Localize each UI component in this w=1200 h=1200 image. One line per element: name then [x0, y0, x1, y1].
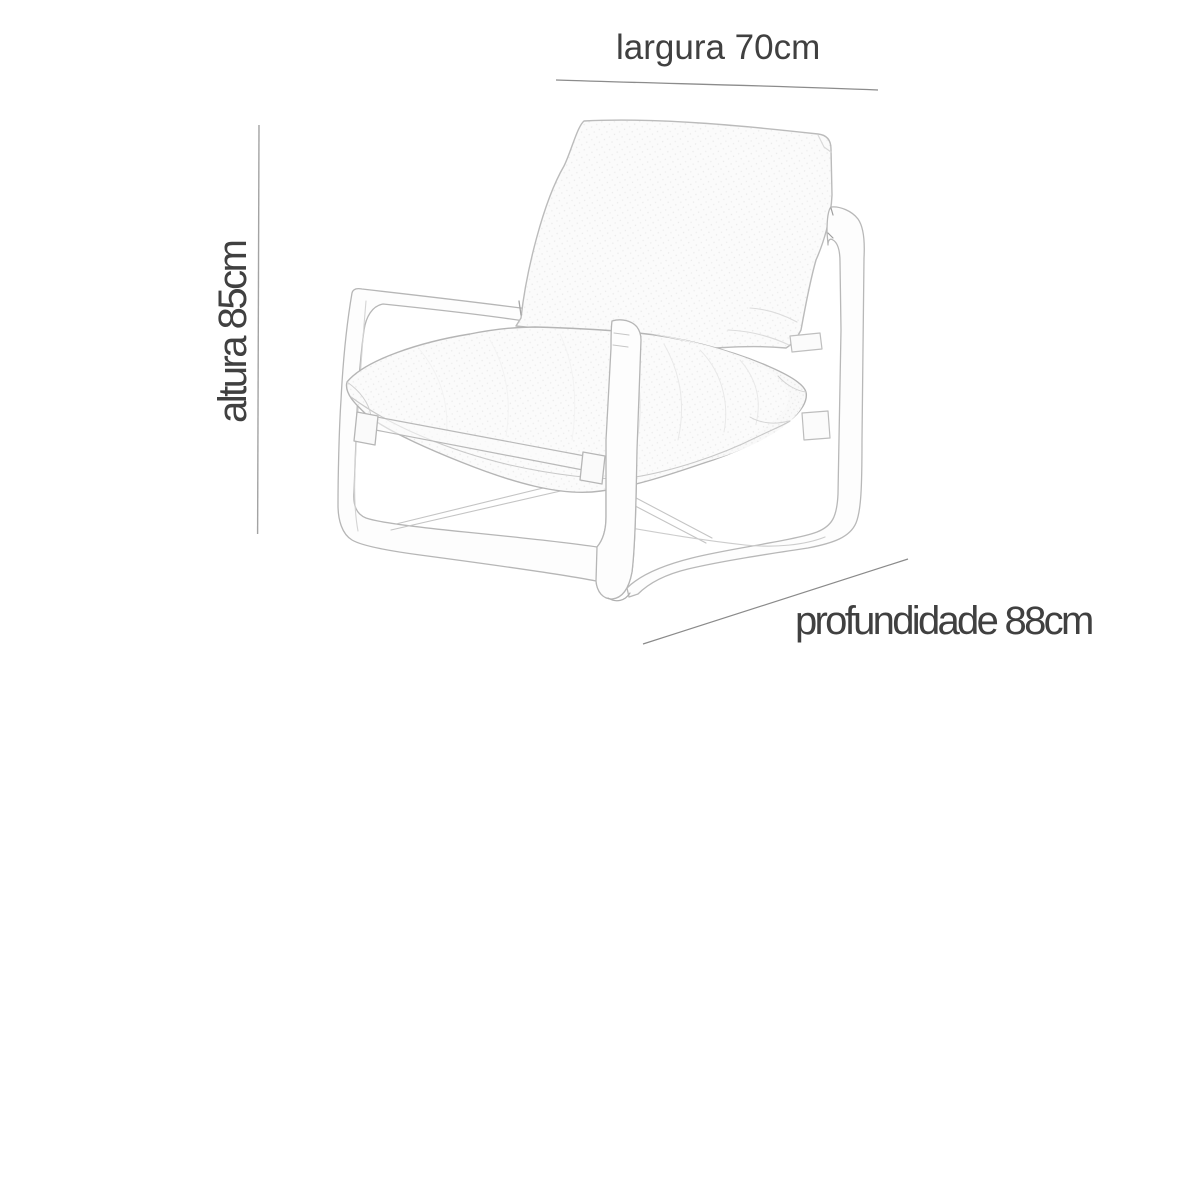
svg-text:largura 70cm: largura 70cm	[616, 28, 820, 67]
svg-text:altura 85cm: altura 85cm	[211, 241, 255, 423]
svg-text:profundidade 88cm: profundidade 88cm	[795, 599, 1092, 643]
